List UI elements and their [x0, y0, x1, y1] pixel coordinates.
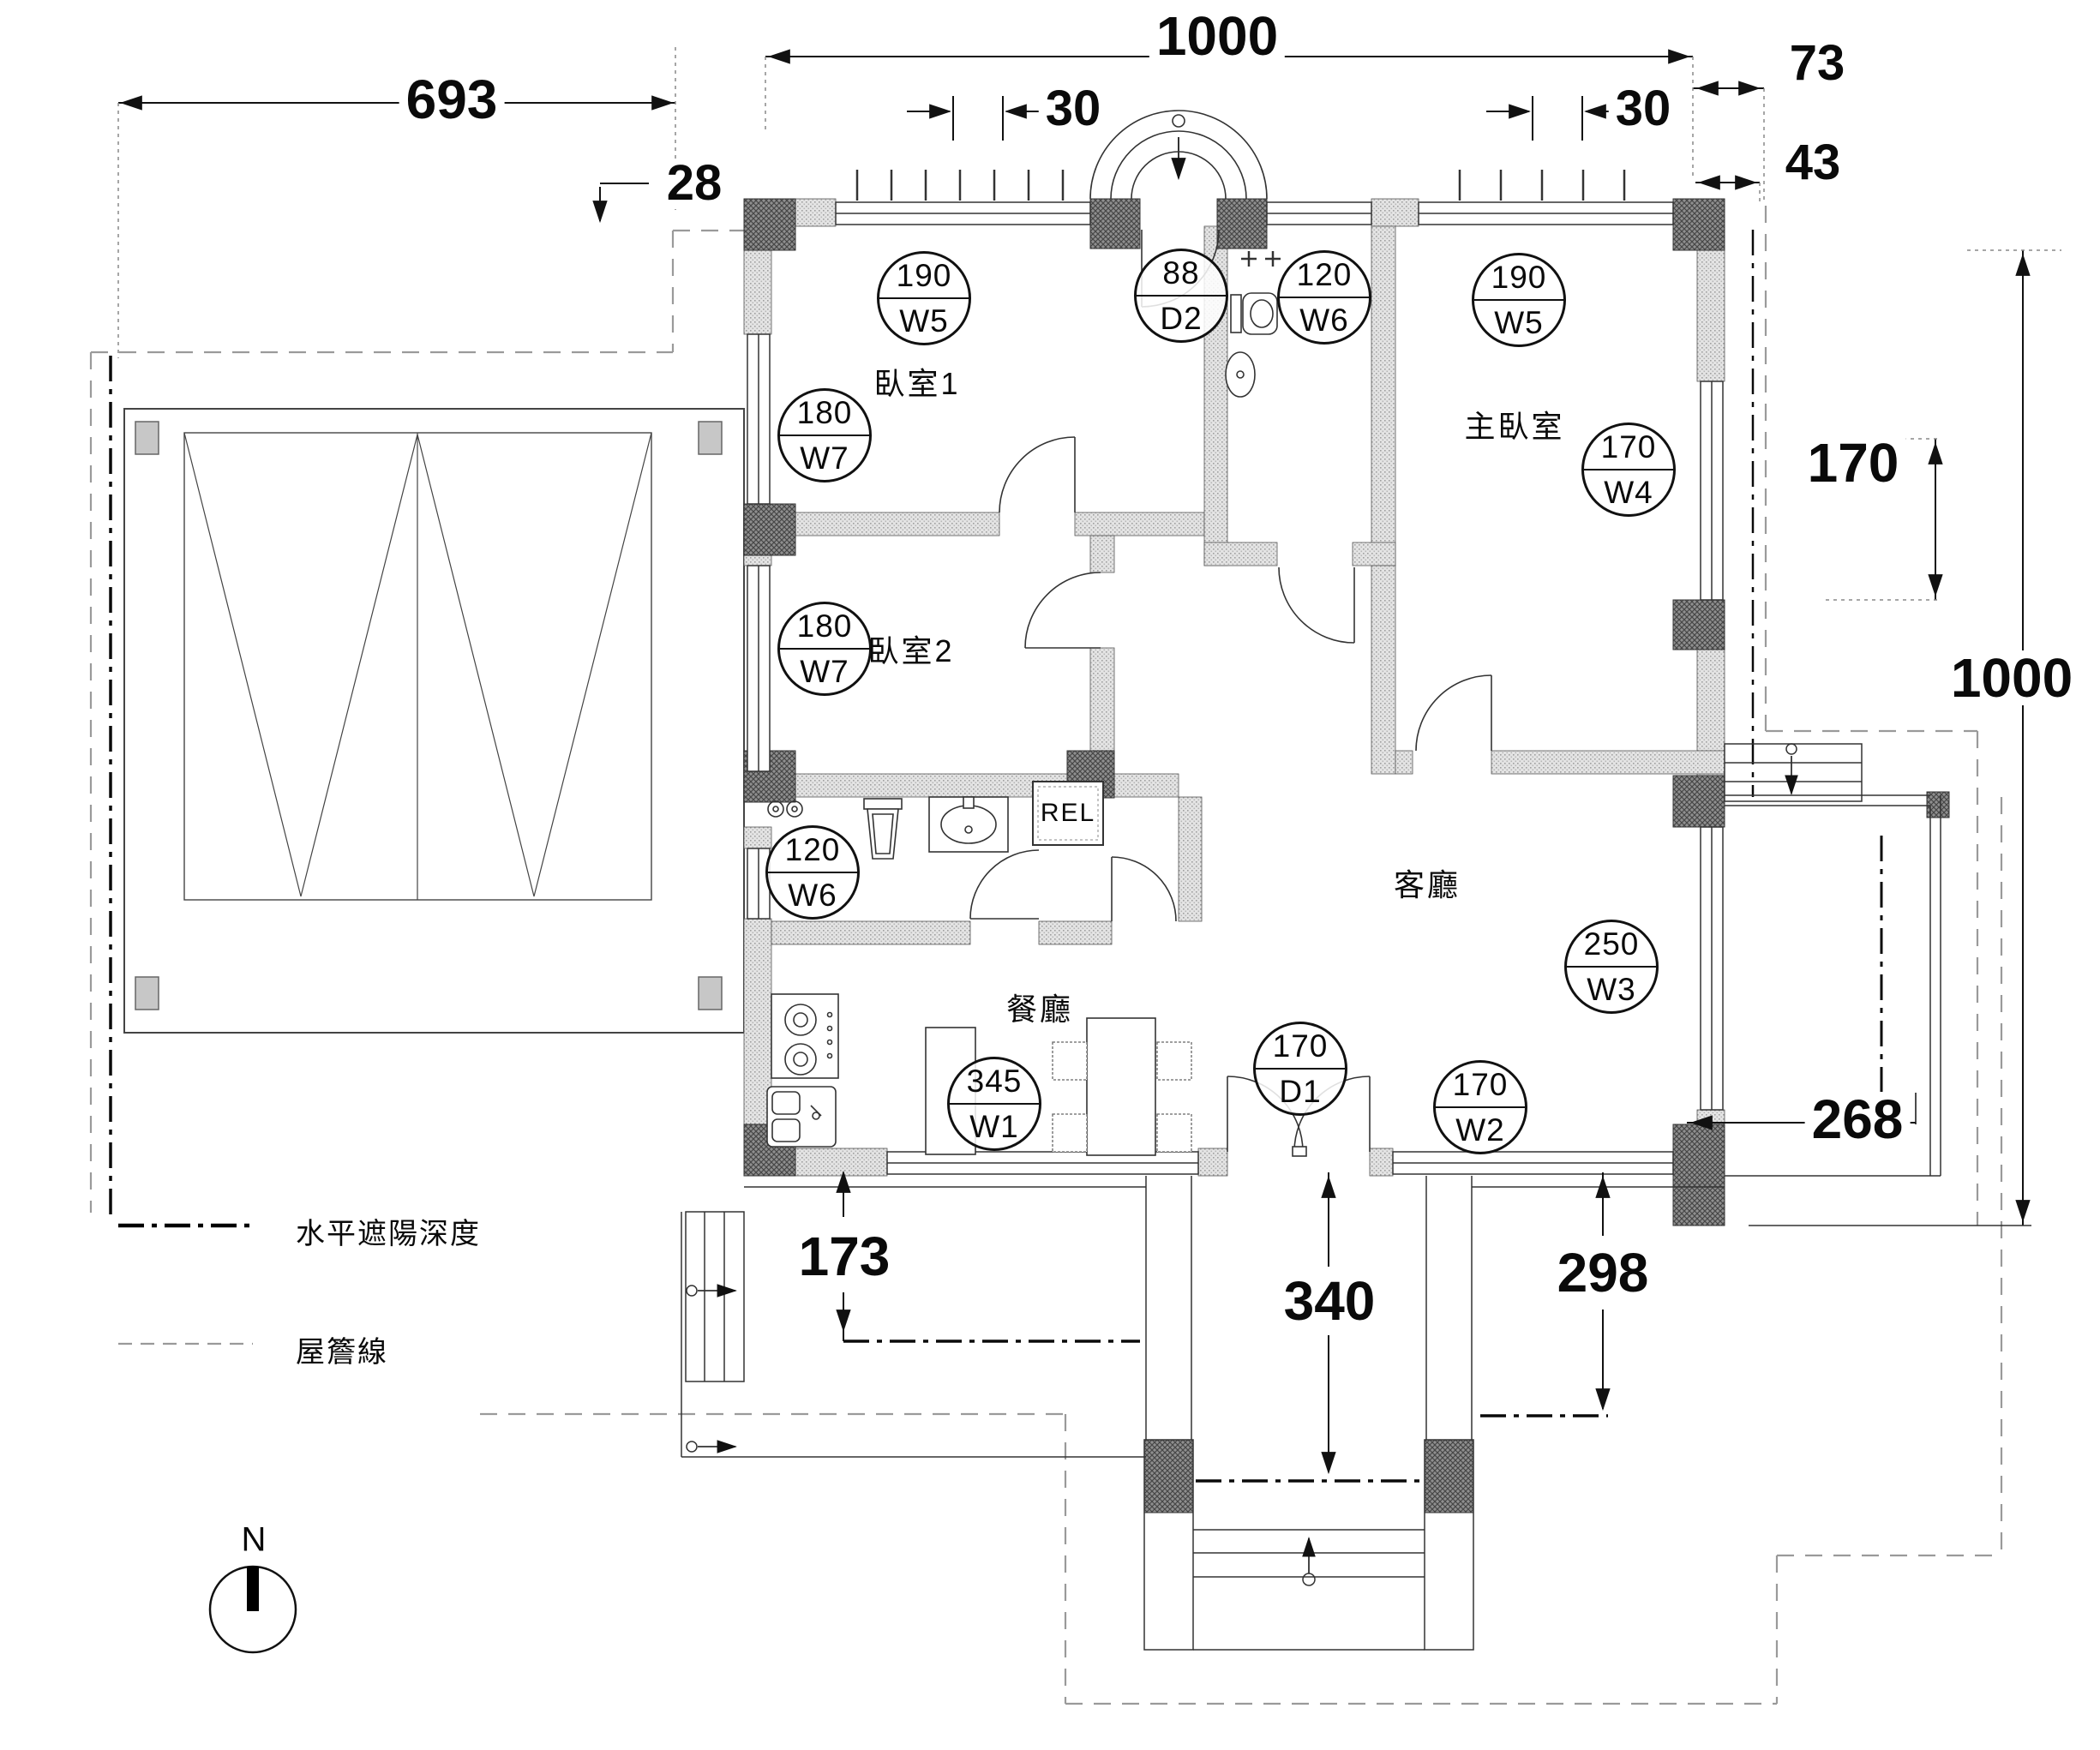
room-label-bedroom2: 臥室2	[867, 626, 954, 671]
tag-code: W3	[1567, 968, 1656, 1011]
tag-size: 170	[1584, 425, 1673, 470]
stove	[771, 994, 838, 1078]
side-steps-right	[1725, 744, 1862, 801]
legend-eave-line: 屋簷線	[296, 1328, 388, 1370]
dim-right-height: 1000	[1944, 650, 2079, 705]
tag-w2-living: 170 W2	[1433, 1060, 1527, 1154]
legend-line-samples	[118, 1226, 253, 1344]
tag-code: D1	[1256, 1070, 1345, 1113]
tag-w5-master: 190 W5	[1472, 253, 1566, 347]
dim-right-offset-lower: 43	[1779, 138, 1848, 188]
tap-icons-lower-bath	[768, 801, 802, 817]
tag-w6-lower-bath: 120 W6	[765, 825, 860, 920]
tag-code: W7	[780, 436, 869, 480]
tag-w1-dining: 345 W1	[947, 1057, 1041, 1151]
deck-structure	[124, 409, 744, 1033]
dim-top-width: 1000	[1149, 9, 1285, 63]
room-label-bedroom1: 臥室1	[873, 359, 960, 404]
deck-posts	[135, 422, 722, 1010]
tag-code: D2	[1137, 297, 1226, 340]
tag-size: 190	[1474, 255, 1563, 301]
arched-entry	[1090, 111, 1267, 199]
dim-patio-width: 268	[1805, 1092, 1911, 1147]
tag-d2: 88 D2	[1134, 249, 1228, 343]
sink-lower-bath	[929, 797, 1008, 852]
room-label-dining-room: 餐廳	[1006, 985, 1073, 1029]
rel-label: REL	[1041, 799, 1095, 828]
tag-size: 180	[780, 391, 869, 436]
tag-size: 190	[879, 254, 969, 299]
dining-table	[1087, 1018, 1155, 1155]
tag-w4-master: 170 W4	[1581, 423, 1676, 517]
tag-code: W6	[1280, 298, 1369, 342]
room-label-living-room: 客廳	[1394, 860, 1461, 905]
tag-code: W6	[768, 873, 857, 917]
tag-size: 120	[1280, 253, 1369, 298]
tag-size: 180	[780, 604, 869, 650]
tag-size: 170	[1256, 1024, 1345, 1070]
tag-w6-top-bath: 120 W6	[1277, 250, 1371, 345]
tag-w3-living: 250 W3	[1564, 920, 1659, 1014]
toilet-lower-bath	[864, 799, 902, 859]
tag-code: W2	[1436, 1108, 1525, 1152]
tag-w5-bedroom1: 190 W5	[877, 251, 971, 345]
dim-eave-offset: 28	[660, 159, 729, 208]
dim-terrace-offset: 298	[1551, 1245, 1656, 1300]
tag-code: W5	[1474, 301, 1563, 345]
tag-code: W5	[879, 299, 969, 343]
tag-size: 88	[1137, 251, 1226, 297]
dim-top-inset-right: 30	[1609, 84, 1678, 134]
dim-right-offset-upper: 73	[1783, 39, 1852, 88]
tag-size: 120	[768, 828, 857, 873]
tap-icons-top-bath	[1241, 251, 1281, 267]
toilet-top-bath	[1231, 293, 1277, 334]
tag-code: W4	[1584, 470, 1673, 514]
tag-code: W1	[950, 1105, 1039, 1148]
north-label: N	[242, 1521, 267, 1560]
floorplan-canvas: 1000 73 43 30 30 693 28 170 1000 268 173…	[0, 0, 2100, 1750]
dim-window-w4-height: 170	[1801, 435, 1906, 490]
dim-porch-left-offset: 173	[792, 1229, 897, 1284]
floorplan-drawing	[0, 0, 2100, 1750]
dim-top-inset-left: 30	[1039, 84, 1108, 134]
side-steps-left	[686, 1212, 744, 1452]
kitchen-sink	[767, 1087, 836, 1147]
tag-w7-bedroom2: 180 W7	[777, 602, 872, 696]
dim-deck-width: 693	[399, 72, 505, 127]
sink-top-bath	[1226, 352, 1255, 397]
tag-size: 345	[950, 1059, 1039, 1105]
tag-w7-bedroom1: 180 W7	[777, 388, 872, 482]
tag-d1-entry: 170 D1	[1253, 1022, 1347, 1116]
tag-size: 250	[1567, 922, 1656, 968]
window-ticks	[857, 170, 1624, 201]
tag-size: 170	[1436, 1063, 1525, 1108]
legend-shading-depth: 水平遮陽深度	[296, 1210, 481, 1252]
north-arrow-icon	[210, 1567, 296, 1652]
walls	[744, 199, 1725, 1176]
dim-entry-offset: 340	[1277, 1274, 1383, 1328]
room-label-master-bedroom: 主臥室	[1464, 402, 1564, 446]
tag-code: W7	[780, 650, 869, 693]
